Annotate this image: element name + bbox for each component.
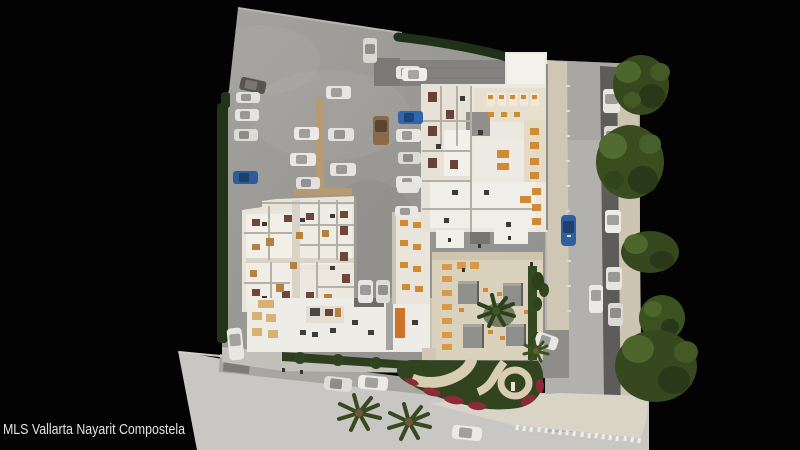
svg-text:MLS Vallarta Nayarit Compostel: MLS Vallarta Nayarit Compostela bbox=[3, 421, 186, 438]
